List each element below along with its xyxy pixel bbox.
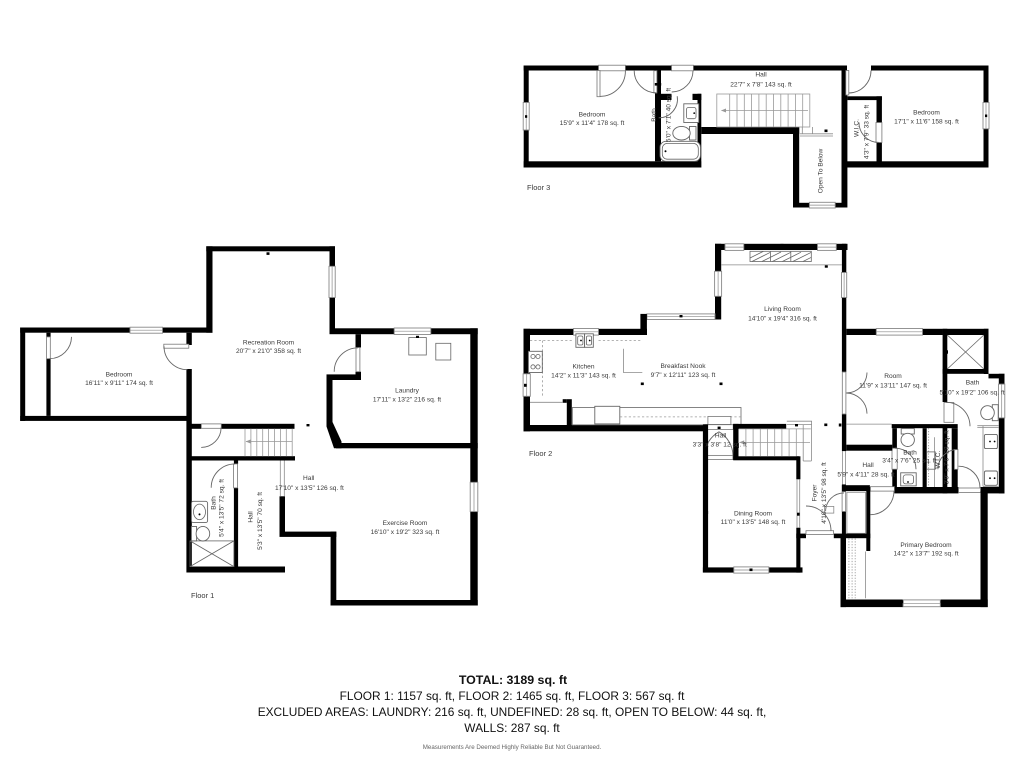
svg-text:22'7" x 7'8" 143 sq. ft: 22'7" x 7'8" 143 sq. ft [730, 82, 792, 89]
svg-text:EXCLUDED AREAS: LAUNDRY: 216 s: EXCLUDED AREAS: LAUNDRY: 216 sq. ft, UND… [258, 705, 767, 719]
svg-text:3'4" x 7'6" 25 sq. ft: 3'4" x 7'6" 25 sq. ft [882, 458, 936, 465]
svg-text:Hall: Hall [755, 72, 767, 79]
svg-text:Hall: Hall [715, 433, 727, 440]
svg-text:Hall: Hall [862, 462, 874, 469]
svg-text:Floor 1: Floor 1 [191, 591, 214, 600]
svg-text:Bath: Bath [211, 496, 218, 510]
svg-text:5'10" x 19'2" 106 sq. ft: 5'10" x 19'2" 106 sq. ft [939, 390, 1004, 397]
svg-text:Bedroom: Bedroom [579, 112, 606, 119]
svg-text:FLOOR 1: 1157 sq. ft, FLOOR 2:: FLOOR 1: 1157 sq. ft, FLOOR 2: 1465 sq. … [340, 689, 685, 703]
svg-text:Laundry: Laundry [395, 388, 420, 395]
svg-text:W.I.C.: W.I.C. [935, 450, 942, 468]
svg-text:14'10" x 19'4" 316 sq. ft: 14'10" x 19'4" 316 sq. ft [748, 316, 817, 323]
svg-text:Bedroom: Bedroom [106, 372, 133, 379]
svg-text:Primary Bedroom: Primary Bedroom [900, 542, 952, 549]
svg-text:5'3" x 13'5" 70 sq. ft: 5'3" x 13'5" 70 sq. ft [257, 492, 264, 550]
svg-text:16'11" x 9'11" 174 sq. ft: 16'11" x 9'11" 174 sq. ft [85, 380, 153, 387]
svg-text:15'9" x 11'4" 178 sq. ft: 15'9" x 11'4" 178 sq. ft [560, 120, 625, 127]
svg-text:17'11" x 13'2" 216 sq. ft: 17'11" x 13'2" 216 sq. ft [373, 397, 441, 404]
svg-text:Room: Room [884, 373, 902, 380]
svg-text:Exercise Room: Exercise Room [383, 520, 428, 527]
svg-text:Foyer: Foyer [812, 484, 819, 502]
svg-text:WALLS: 287 sq. ft: WALLS: 287 sq. ft [464, 721, 560, 735]
svg-text:TOTAL: 3189 sq. ft: TOTAL: 3189 sq. ft [459, 673, 567, 687]
svg-text:Dining Room: Dining Room [734, 511, 773, 518]
svg-text:Kitchen: Kitchen [573, 364, 595, 371]
svg-text:Breakfast Nook: Breakfast Nook [660, 363, 706, 370]
svg-text:11'0" x 13'5" 148 sq. ft: 11'0" x 13'5" 148 sq. ft [721, 519, 786, 526]
svg-text:Measurements Are Deemed Highly: Measurements Are Deemed Highly Reliable … [423, 744, 602, 751]
svg-text:5'4" x 13'5" 72 sq. ft: 5'4" x 13'5" 72 sq. ft [219, 479, 226, 537]
svg-text:17'1" x 11'6" 158 sq. ft: 17'1" x 11'6" 158 sq. ft [894, 119, 959, 126]
svg-text:16'10" x 19'2" 323 sq. ft: 16'10" x 19'2" 323 sq. ft [371, 529, 440, 536]
svg-text:11'9" x 13'11" 147 sq. ft: 11'9" x 13'11" 147 sq. ft [859, 383, 927, 390]
svg-text:9'7" x 12'11" 123 sq. ft: 9'7" x 12'11" 123 sq. ft [651, 372, 716, 379]
svg-text:Living Room: Living Room [764, 306, 801, 313]
svg-text:Hall: Hall [248, 511, 255, 523]
svg-text:4'10" x 13'5" 98 sq. ft: 4'10" x 13'5" 98 sq. ft [821, 462, 828, 524]
svg-text:5'0" x 7'1" 40 sq. ft: 5'0" x 7'1" 40 sq. ft [665, 88, 672, 142]
svg-text:Bedroom: Bedroom [913, 110, 940, 117]
svg-text:Hall: Hall [303, 475, 315, 482]
svg-text:17'10" x 13'5" 126 sq. ft: 17'10" x 13'5" 126 sq. ft [275, 485, 344, 492]
svg-text:20'7" x 21'0" 358 sq. ft: 20'7" x 21'0" 358 sq. ft [236, 348, 301, 355]
svg-text:Bath: Bath [903, 449, 917, 456]
svg-text:4'3" x 7'9" 33 sq. ft: 4'3" x 7'9" 33 sq. ft [864, 105, 871, 159]
svg-text:Floor 2: Floor 2 [529, 449, 552, 458]
svg-text:Recreation Room: Recreation Room [243, 340, 295, 347]
svg-text:Bath: Bath [651, 108, 658, 122]
svg-text:3'9" x 7'6" 28 sq. ft: 3'9" x 7'6" 28 sq. ft [943, 430, 950, 484]
svg-text:Open To Below: Open To Below [818, 148, 825, 193]
svg-text:14'2" x 11'3" 143 sq. ft: 14'2" x 11'3" 143 sq. ft [551, 372, 616, 379]
svg-text:3'3" x 3'8" 12 sq. ft: 3'3" x 3'8" 12 sq. ft [693, 442, 747, 449]
svg-text:14'2" x 13'7" 192 sq. ft: 14'2" x 13'7" 192 sq. ft [893, 551, 958, 558]
svg-text:5'9" x 4'11" 28 sq. ft: 5'9" x 4'11" 28 sq. ft [837, 472, 894, 479]
svg-text:W.I.C.: W.I.C. [854, 119, 861, 137]
svg-text:Bath: Bath [966, 380, 980, 387]
svg-text:Floor 3: Floor 3 [527, 183, 550, 192]
